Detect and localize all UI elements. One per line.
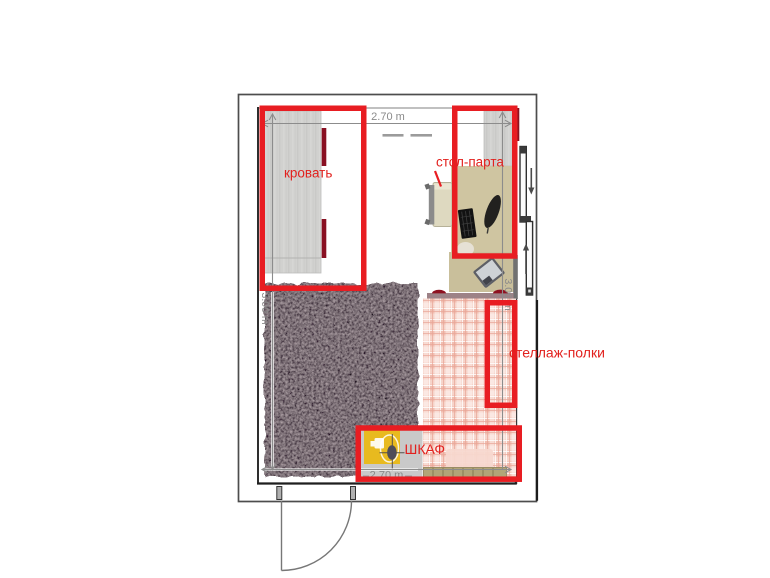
svg-text:2.70 m: 2.70 m bbox=[371, 111, 405, 123]
svg-text:ШКАФ: ШКАФ bbox=[405, 441, 446, 457]
svg-text:стеллаж-полки: стеллаж-полки bbox=[509, 345, 605, 361]
svg-text:3.00 m: 3.00 m bbox=[259, 293, 271, 325]
svg-text:кровать: кровать bbox=[284, 166, 332, 181]
svg-text:стол-парта: стол-парта bbox=[436, 155, 504, 170]
